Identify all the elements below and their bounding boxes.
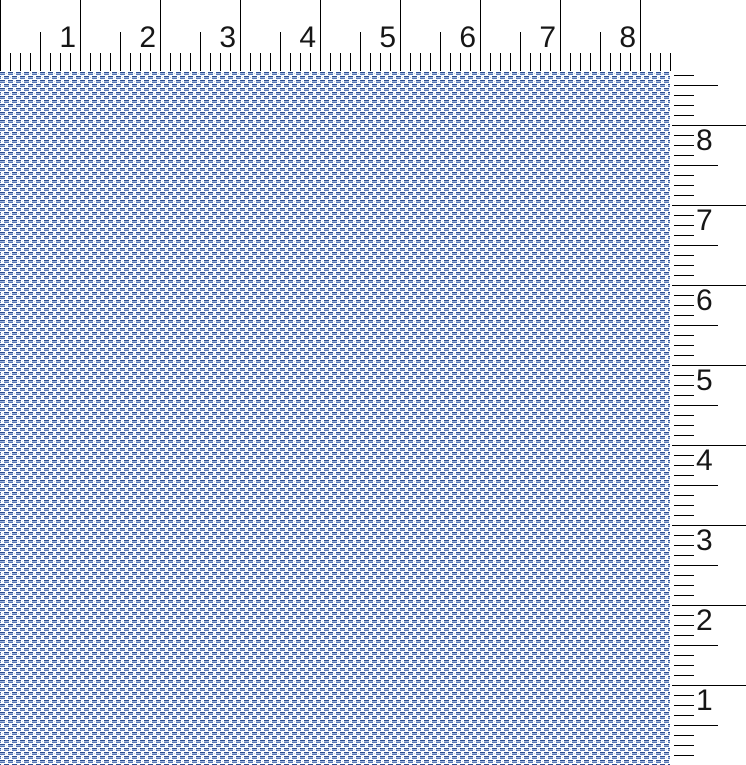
ruler-label: 5 bbox=[379, 21, 396, 54]
ruler-label: 2 bbox=[139, 21, 156, 54]
weaving-workspace: 12345678 87654321 bbox=[0, 0, 746, 765]
ruler-label: 6 bbox=[459, 21, 476, 54]
ruler-label: 6 bbox=[696, 284, 713, 317]
fabric-swatch bbox=[0, 72, 670, 765]
fabric-weave-texture bbox=[0, 72, 670, 765]
ruler-label: 4 bbox=[299, 21, 316, 54]
ruler-label: 7 bbox=[539, 21, 556, 54]
ruler-label: 3 bbox=[219, 21, 236, 54]
vertical-ruler-ticks: 87654321 bbox=[670, 72, 746, 765]
ruler-label: 5 bbox=[696, 364, 713, 397]
horizontal-ruler: 12345678 bbox=[0, 0, 672, 72]
ruler-label: 1 bbox=[696, 684, 713, 717]
ruler-label: 1 bbox=[59, 21, 76, 54]
ruler-label: 8 bbox=[696, 124, 713, 157]
vertical-ruler: 87654321 bbox=[670, 72, 746, 765]
horizontal-ruler-ticks: 12345678 bbox=[0, 0, 672, 72]
ruler-label: 3 bbox=[696, 524, 713, 557]
fabric-preview-canvas[interactable] bbox=[0, 72, 670, 765]
ruler-label: 2 bbox=[696, 604, 713, 637]
ruler-label: 4 bbox=[696, 444, 713, 477]
ruler-label: 7 bbox=[696, 204, 713, 237]
ruler-label: 8 bbox=[619, 21, 636, 54]
